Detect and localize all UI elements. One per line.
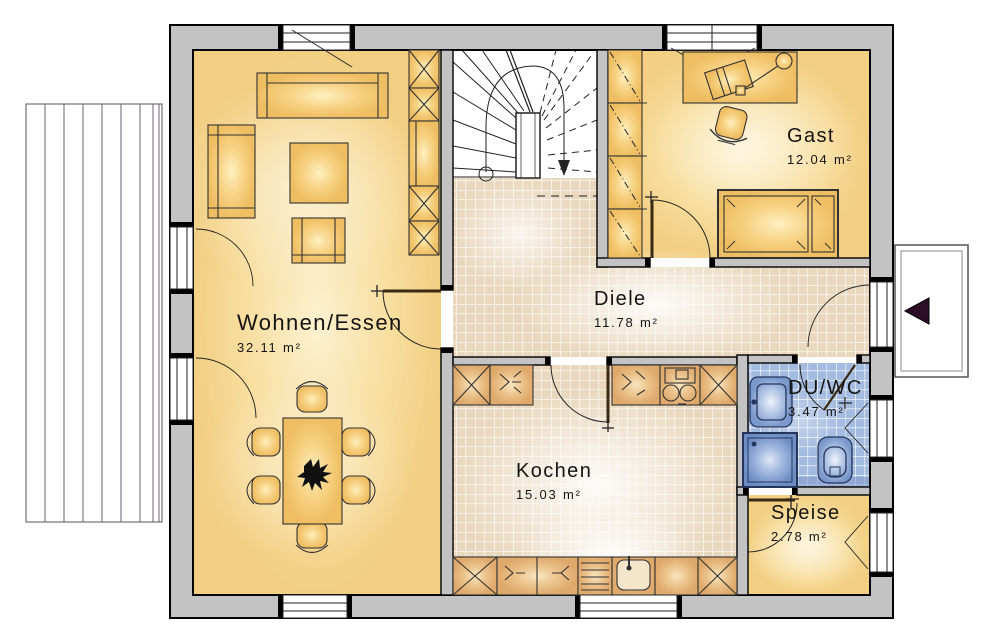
stove — [660, 365, 700, 405]
armchair — [292, 218, 345, 263]
room-area: 15.03 m² — [516, 488, 592, 501]
cabinet-x — [453, 365, 490, 405]
cabinet-fridge — [490, 365, 533, 405]
cabinet-x — [700, 365, 737, 405]
window-living-bottom — [283, 595, 347, 618]
coffee-table — [290, 143, 348, 203]
shelf-unit — [409, 50, 439, 255]
room-area: 3.47 m² — [788, 405, 863, 418]
room-name: Kochen — [516, 461, 592, 481]
sofa-large — [257, 73, 388, 118]
bed — [718, 190, 838, 258]
terrace-deck — [26, 104, 162, 522]
entrance-porch — [895, 245, 968, 377]
label-kochen: Kochen 15.03 m² — [516, 461, 592, 501]
floor-plan-drawing — [0, 0, 1000, 643]
room-name: Wohnen/Essen — [237, 312, 403, 334]
room-name: DU/WC — [788, 378, 863, 398]
cabinet-drawers — [497, 557, 578, 595]
cabinet-x — [698, 557, 737, 595]
room-name: Diele — [594, 289, 659, 309]
sofa-small — [208, 125, 255, 218]
room-area: 2.78 m² — [771, 530, 841, 543]
toilet — [818, 437, 852, 483]
room-area: 32.11 m² — [237, 341, 403, 354]
cabinet-x — [453, 557, 497, 595]
wardrobe — [608, 50, 647, 258]
room-name: Gast — [787, 126, 853, 146]
dishwasher — [578, 557, 612, 595]
label-speise: Speise 2.78 m² — [771, 503, 841, 543]
shower — [743, 433, 797, 487]
room-area: 11.78 m² — [594, 316, 659, 329]
cabinet-plain — [655, 557, 698, 595]
label-wohnen-essen: Wohnen/Essen 32.11 m² — [237, 312, 403, 354]
label-gast: Gast 12.04 m² — [787, 126, 853, 166]
cabinet-tall — [612, 365, 660, 405]
floor-plan: Wohnen/Essen 32.11 m² Diele 11.78 m² Gas… — [0, 0, 1000, 643]
room-name: Speise — [771, 503, 841, 523]
room-area: 12.04 m² — [787, 153, 853, 166]
label-duwc: DU/WC 3.47 m² — [788, 378, 863, 418]
sink — [612, 556, 655, 595]
label-diele: Diele 11.78 m² — [594, 289, 659, 329]
washbasin — [750, 377, 792, 427]
